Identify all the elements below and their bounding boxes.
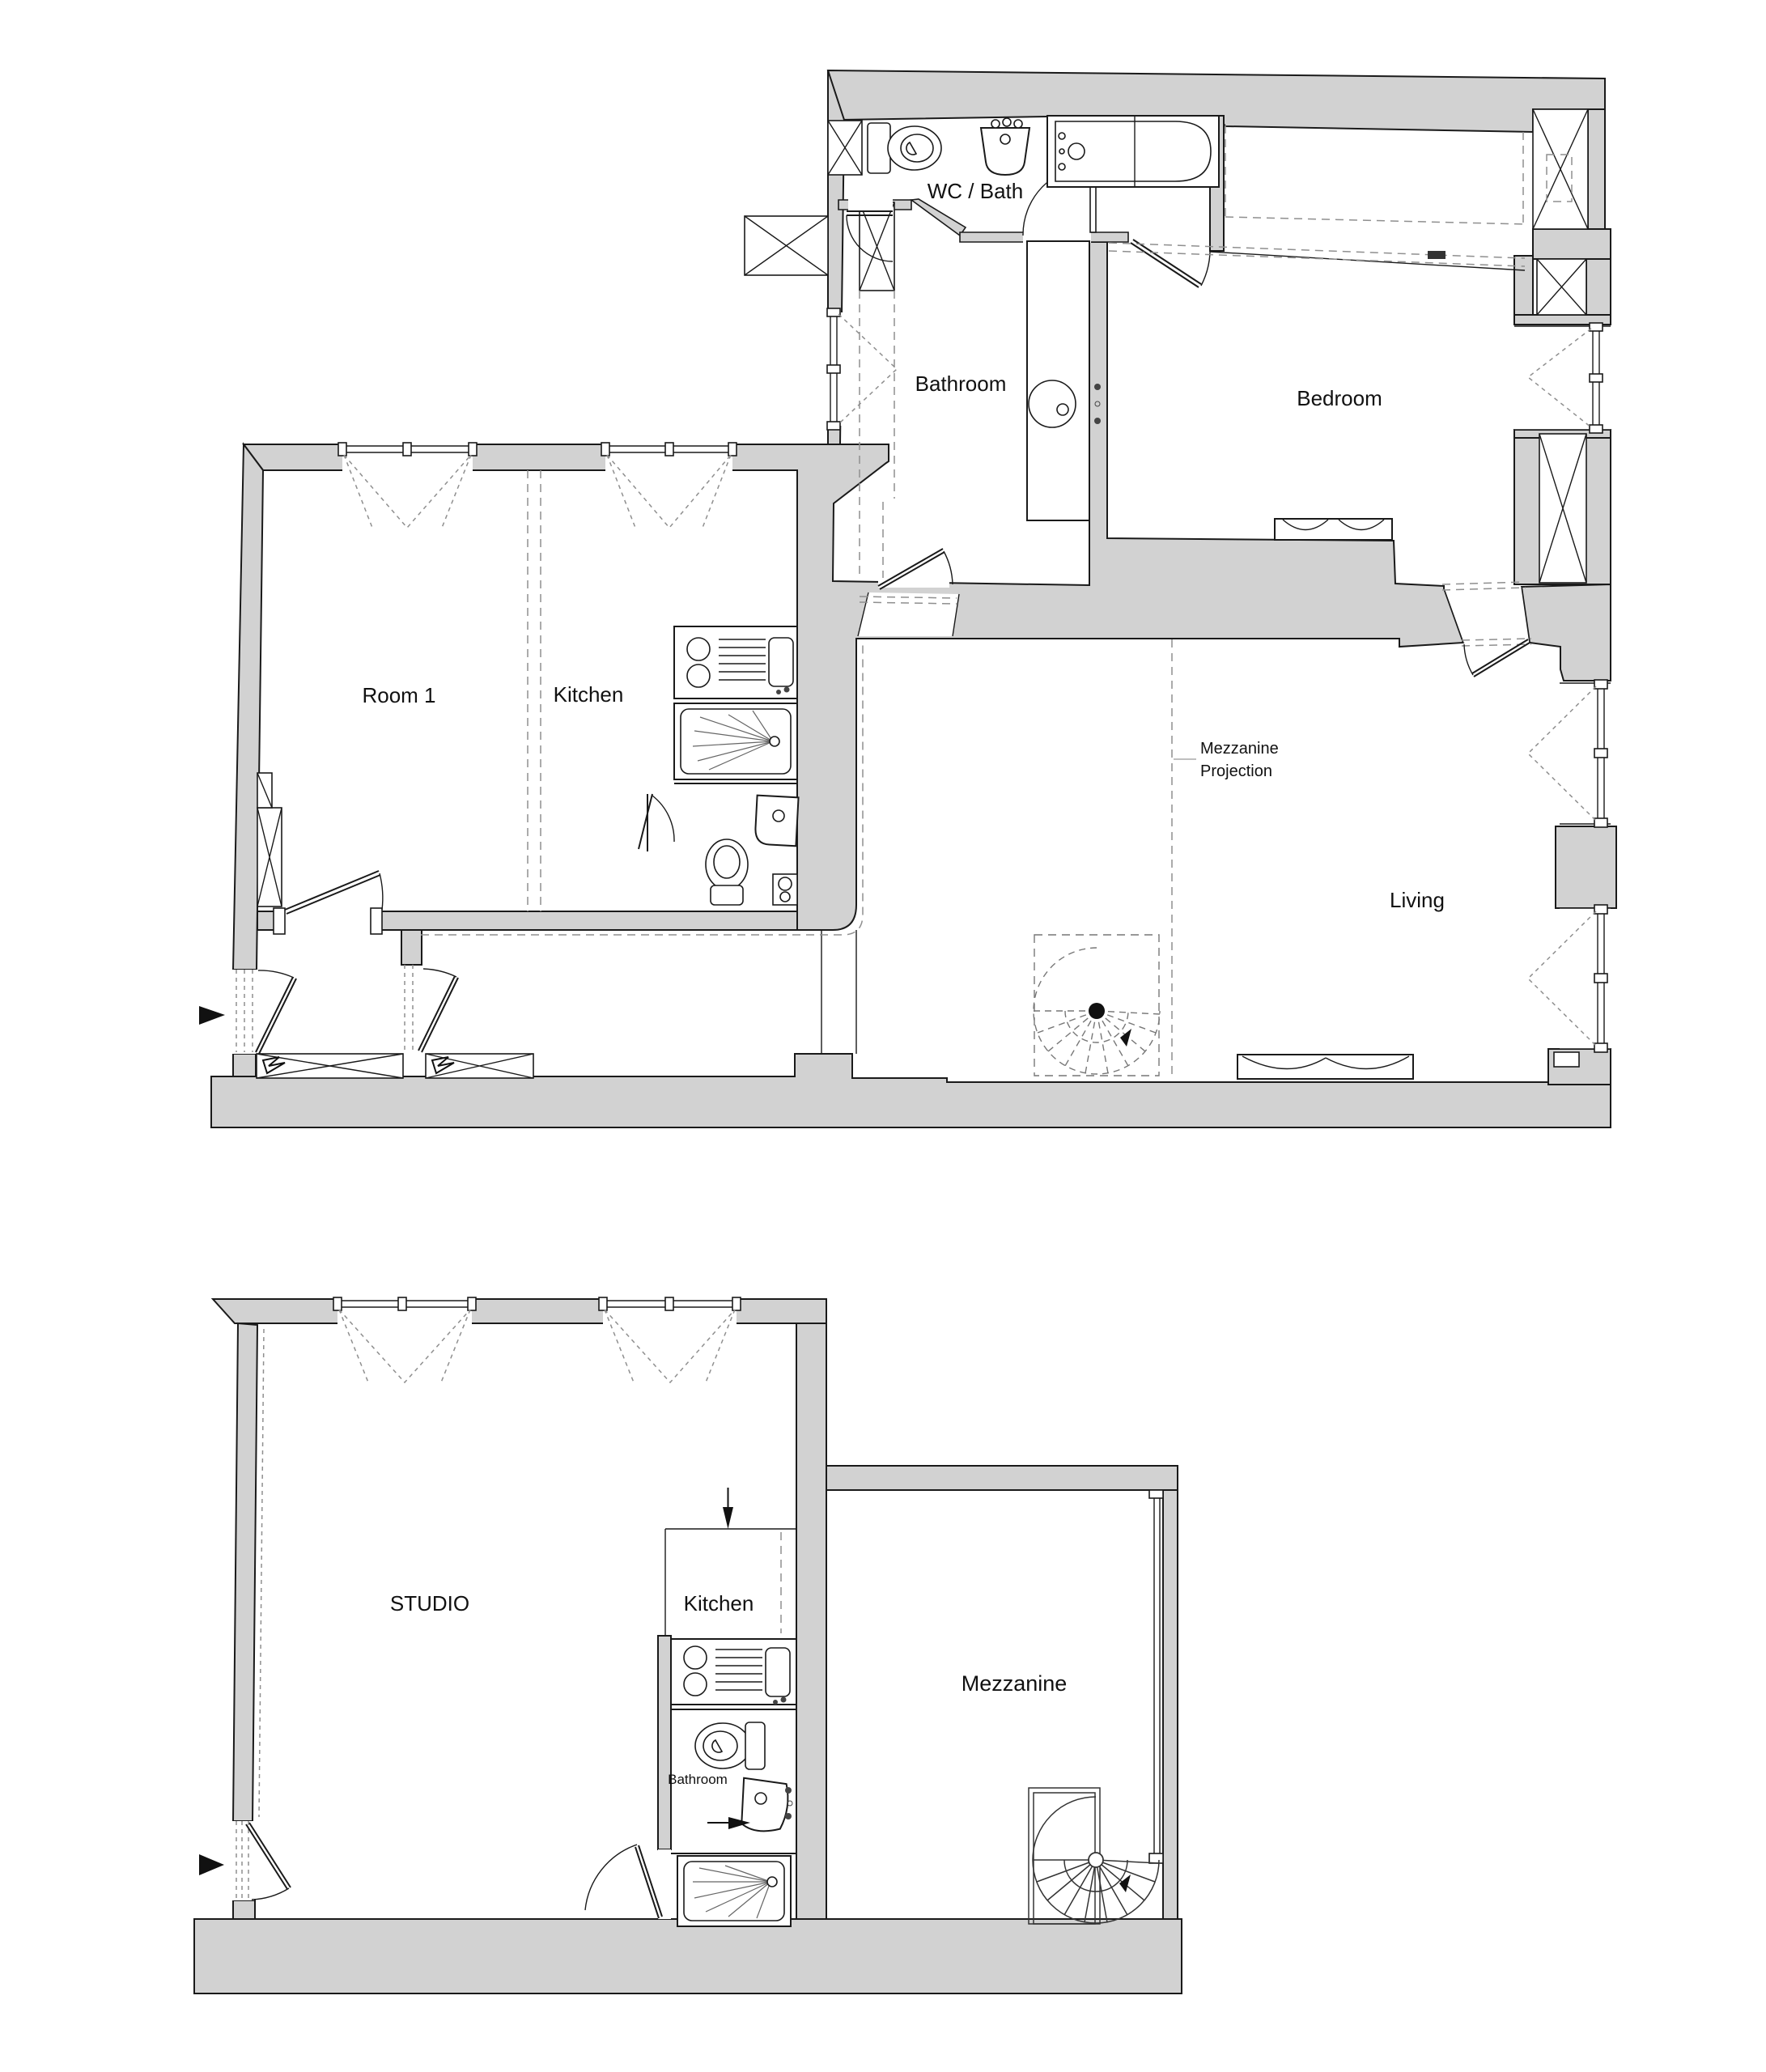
svg-text:Bathroom: Bathroom: [668, 1772, 728, 1787]
svg-text:Living: Living: [1390, 888, 1445, 912]
svg-text:Projection: Projection: [1200, 762, 1272, 780]
svg-text:Mezzanine: Mezzanine: [1200, 740, 1279, 758]
svg-text:STUDIO: STUDIO: [390, 1591, 469, 1616]
svg-text:Mezzanine: Mezzanine: [962, 1671, 1068, 1696]
svg-text:Kitchen: Kitchen: [554, 682, 624, 707]
svg-text:Room 1: Room 1: [362, 683, 435, 707]
svg-text:WC / Bath: WC / Bath: [928, 179, 1023, 203]
svg-text:Bedroom: Bedroom: [1297, 386, 1382, 410]
svg-text:Kitchen: Kitchen: [684, 1591, 754, 1616]
svg-text:Bathroom: Bathroom: [915, 372, 1007, 396]
